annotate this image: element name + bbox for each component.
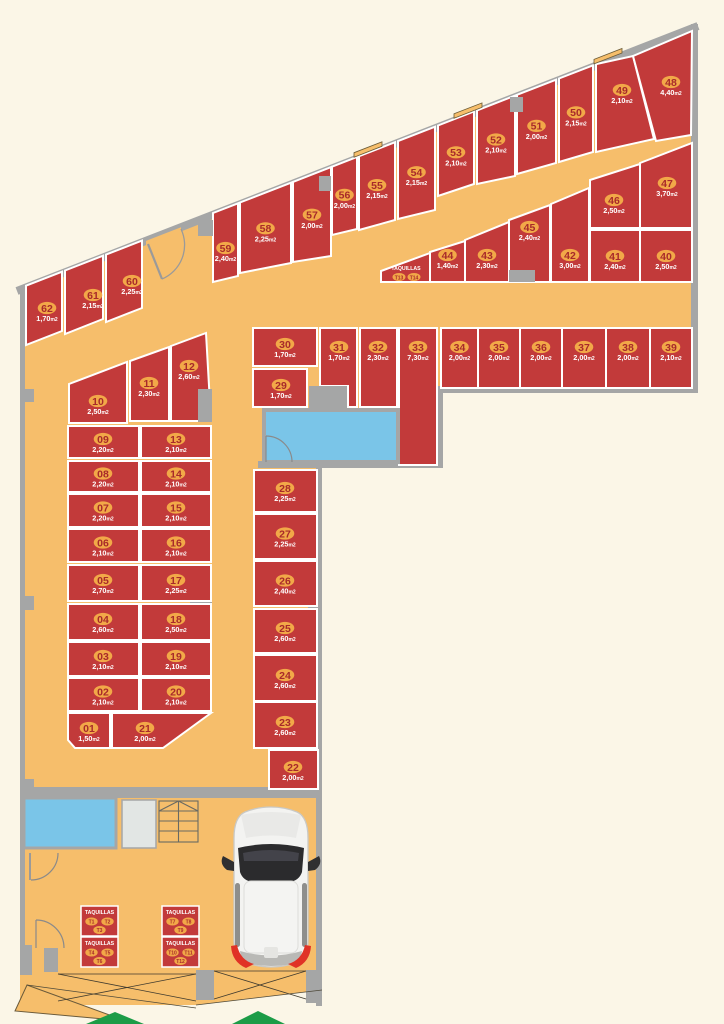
svg-text:55: 55	[371, 180, 383, 192]
svg-text:52: 52	[490, 134, 502, 146]
svg-text:26: 26	[279, 575, 291, 587]
svg-text:T1: T1	[89, 920, 95, 926]
svg-text:37: 37	[578, 342, 590, 354]
svg-text:31: 31	[333, 342, 345, 354]
svg-text:TAQUILLAS: TAQUILLAS	[85, 941, 115, 947]
svg-text:47: 47	[661, 178, 673, 190]
svg-text:03: 03	[97, 651, 109, 663]
svg-text:T11: T11	[184, 951, 193, 957]
svg-text:10: 10	[92, 396, 104, 408]
svg-text:T5: T5	[105, 951, 111, 957]
svg-text:13: 13	[170, 434, 182, 446]
svg-text:TAQUILLAS: TAQUILLAS	[166, 941, 196, 947]
svg-text:59: 59	[220, 243, 232, 255]
svg-text:20: 20	[170, 686, 182, 698]
svg-text:40: 40	[660, 251, 672, 263]
svg-text:15: 15	[170, 502, 182, 514]
svg-text:TAQUILLAS: TAQUILLAS	[85, 910, 115, 916]
svg-text:06: 06	[97, 537, 109, 549]
svg-text:16: 16	[170, 537, 182, 549]
svg-text:57: 57	[306, 210, 318, 222]
svg-text:T8: T8	[186, 920, 192, 926]
svg-text:04: 04	[97, 614, 109, 626]
svg-text:T2: T2	[105, 920, 111, 926]
svg-text:T6: T6	[97, 959, 103, 965]
svg-text:38: 38	[622, 342, 634, 354]
svg-text:49: 49	[616, 85, 628, 97]
svg-text:T7: T7	[170, 920, 176, 926]
svg-text:29: 29	[275, 380, 287, 392]
svg-text:39: 39	[665, 342, 677, 354]
svg-text:33: 33	[412, 342, 424, 354]
svg-text:35: 35	[493, 342, 505, 354]
svg-text:41: 41	[609, 251, 621, 263]
svg-text:T9: T9	[178, 928, 184, 934]
svg-text:T12: T12	[176, 959, 185, 965]
svg-text:T10: T10	[168, 951, 177, 957]
svg-text:51: 51	[531, 121, 543, 133]
svg-text:45: 45	[524, 222, 536, 234]
svg-text:07: 07	[97, 502, 109, 514]
svg-text:54: 54	[411, 167, 423, 179]
svg-text:T3: T3	[97, 928, 103, 934]
svg-text:27: 27	[279, 528, 291, 540]
svg-text:T4: T4	[89, 951, 95, 957]
svg-text:T14: T14	[410, 276, 419, 282]
svg-text:60: 60	[126, 276, 138, 288]
svg-text:56: 56	[339, 190, 351, 202]
svg-text:48: 48	[665, 77, 677, 89]
svg-text:T13: T13	[395, 276, 404, 282]
svg-text:32: 32	[372, 342, 384, 354]
svg-text:53: 53	[450, 147, 462, 159]
svg-text:02: 02	[97, 686, 109, 698]
svg-text:12: 12	[183, 361, 195, 373]
svg-text:62: 62	[41, 303, 53, 315]
svg-text:36: 36	[535, 342, 547, 354]
svg-text:14: 14	[170, 468, 182, 480]
svg-text:17: 17	[170, 575, 182, 587]
svg-text:24: 24	[279, 670, 291, 682]
svg-text:01: 01	[83, 723, 95, 735]
svg-text:08: 08	[97, 468, 109, 480]
svg-text:58: 58	[260, 223, 272, 235]
svg-text:50: 50	[570, 107, 582, 119]
svg-text:18: 18	[170, 614, 182, 626]
svg-text:TAQUILLAS: TAQUILLAS	[391, 266, 421, 272]
svg-text:25: 25	[279, 623, 291, 635]
svg-text:44: 44	[442, 250, 454, 262]
svg-text:30: 30	[279, 339, 291, 351]
svg-text:22: 22	[287, 762, 299, 774]
svg-text:TAQUILLAS: TAQUILLAS	[166, 910, 196, 916]
svg-text:43: 43	[481, 250, 493, 262]
svg-text:42: 42	[564, 250, 576, 262]
svg-text:21: 21	[139, 723, 151, 735]
svg-text:05: 05	[97, 575, 109, 587]
svg-text:19: 19	[170, 651, 182, 663]
svg-text:23: 23	[279, 717, 291, 729]
svg-text:61: 61	[87, 290, 99, 302]
svg-text:09: 09	[97, 434, 109, 446]
svg-text:34: 34	[454, 342, 466, 354]
svg-text:46: 46	[608, 195, 620, 207]
svg-text:11: 11	[143, 378, 154, 390]
svg-text:28: 28	[279, 483, 291, 495]
